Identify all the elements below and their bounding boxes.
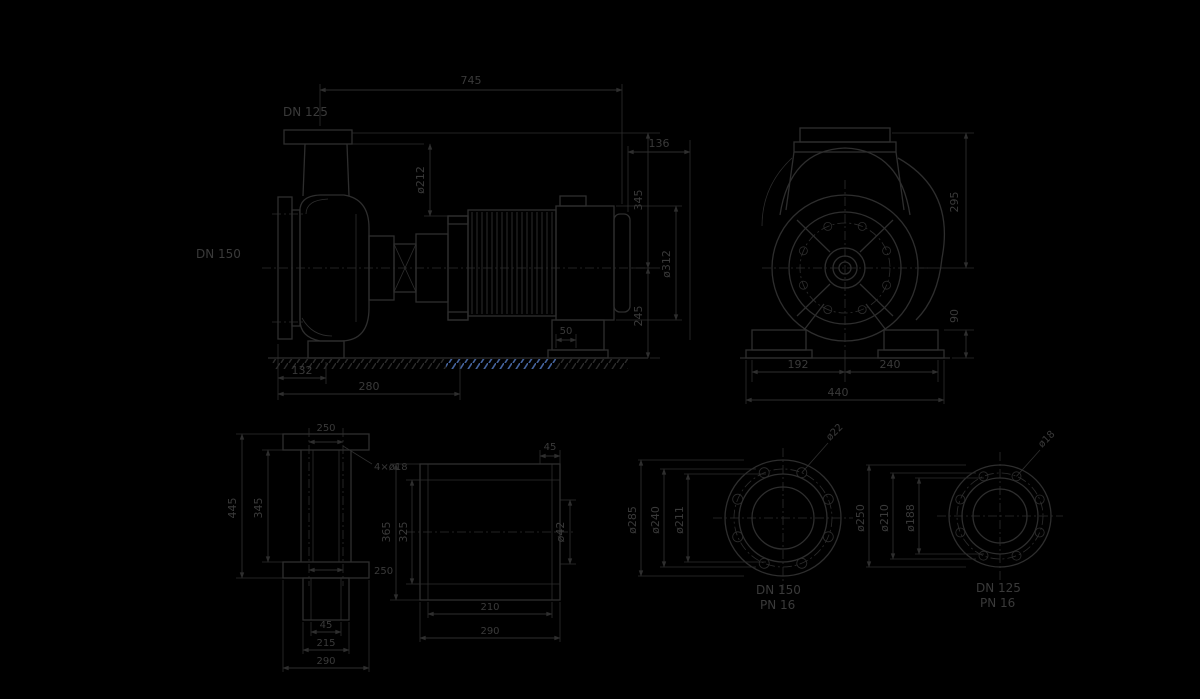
- dim-base-width: 290: [316, 656, 335, 667]
- dim-overall-width: 440: [828, 386, 849, 399]
- volute-curve: [302, 318, 332, 336]
- top-plate: [800, 128, 890, 142]
- dim-foot-height: 90: [948, 309, 961, 323]
- leader-line: [1017, 450, 1041, 476]
- shroud-side: [786, 152, 794, 210]
- label-dn125-size: DN 125: [976, 581, 1021, 595]
- lantern-tab: [448, 312, 468, 320]
- dim-dn150-outer: ø285: [626, 506, 639, 534]
- gusset: [804, 304, 824, 330]
- pump-dimensional-drawing: 745 136 ø212 345 245 ø312 50 132: [0, 0, 1200, 699]
- dim-bolt-span-top: 250: [316, 423, 335, 434]
- dim-overall-height: 445: [226, 498, 239, 519]
- dim-bracket-overall-height: 365: [380, 522, 393, 543]
- end-foot-left: [752, 330, 806, 350]
- main-side-view: 745 136 ø212 345 245 ø312 50 132: [196, 74, 690, 400]
- flange-view-dn150: ø22 ø285 ø240 ø211 DN 150 PN 16: [626, 422, 853, 612]
- end-foot-left-pad: [746, 350, 812, 358]
- dim-corner-offset: 45: [544, 442, 557, 453]
- dim-right-foot-span: 240: [880, 358, 901, 371]
- end-foot-right-pad: [878, 350, 944, 358]
- motor-fins: [470, 212, 554, 314]
- dim-foot-offset: 132: [292, 364, 313, 377]
- dim-lantern-diameter: ø212: [414, 166, 427, 194]
- dim-foot-span: 280: [359, 380, 380, 393]
- dim-inner-height: 345: [252, 498, 265, 519]
- dim-hole-span: 210: [480, 602, 499, 613]
- dim-left-foot-span: 192: [788, 358, 809, 371]
- label-dn125-pressure: PN 16: [980, 596, 1015, 610]
- dim-overall-length: 745: [461, 74, 482, 87]
- gusset: [866, 304, 886, 330]
- dim-dn150-bolt-circle: ø240: [649, 506, 662, 534]
- dim-dn125-outer: ø250: [854, 504, 867, 532]
- note-hole-dn125: ø18: [1036, 429, 1057, 450]
- label-suction-flange: DN 150: [196, 247, 241, 261]
- motor-foot-pad: [548, 350, 608, 358]
- ground-hatch-blue: [446, 359, 556, 369]
- end-foot-right: [884, 330, 938, 350]
- dim-bolt-span-bottom: 250: [374, 566, 393, 577]
- dim-dn150-face: ø211: [673, 506, 686, 534]
- volute-curve: [306, 199, 328, 214]
- label-dn150-pressure: PN 16: [760, 598, 795, 612]
- dim-axis-to-base: 245: [632, 306, 645, 327]
- motor-end-cap: [614, 214, 630, 312]
- discharge-neck: [347, 144, 349, 196]
- discharge-flange: [284, 130, 352, 144]
- label-dn150-size: DN 150: [756, 583, 801, 597]
- dim-bracket-overall-width: 290: [480, 626, 499, 637]
- label-discharge-flange: DN 125: [283, 105, 328, 119]
- end-view: 295 90 192 240 440: [740, 128, 974, 404]
- discharge-neck: [303, 144, 305, 196]
- support-view: 250 4×ø18 250 345 445 45 215 290: [226, 423, 408, 672]
- flange-view-dn125: ø18 ø250 ø210 ø188 DN 125 PN 16: [854, 429, 1063, 610]
- dim-motor-diameter: ø312: [660, 250, 673, 278]
- support-stub: [303, 578, 349, 620]
- dim-dn125-face: ø188: [904, 504, 917, 532]
- dim-bracket-inner-height: 325: [397, 522, 410, 543]
- pump-foot: [308, 341, 344, 358]
- dim-stub-width: 45: [320, 620, 333, 631]
- dim-rear-clearance: 136: [649, 137, 670, 150]
- dim-shaft-diameter: ø42: [554, 522, 567, 543]
- dim-axis-to-top: 295: [948, 192, 961, 213]
- volute-sweep-left: [762, 158, 792, 226]
- top-flange: [794, 142, 896, 152]
- lantern-tab: [448, 216, 468, 224]
- dim-stub-span: 215: [316, 638, 335, 649]
- leader-line: [802, 443, 828, 473]
- note-hole-dn150: ø22: [824, 422, 845, 443]
- volute-sweep: [898, 158, 944, 320]
- dim-dn125-bolt-circle: ø210: [878, 504, 891, 532]
- terminal-box: [560, 196, 586, 206]
- motor-body: [556, 206, 614, 320]
- bracket-view: 45 ø42 365 325 210 290: [380, 442, 576, 642]
- dim-motor-foot: 50: [560, 326, 573, 337]
- drawing-canvas: 745 136 ø212 345 245 ø312 50 132: [0, 0, 1200, 699]
- leader-line: [343, 446, 372, 464]
- dim-axis-to-flange: 345: [632, 190, 645, 211]
